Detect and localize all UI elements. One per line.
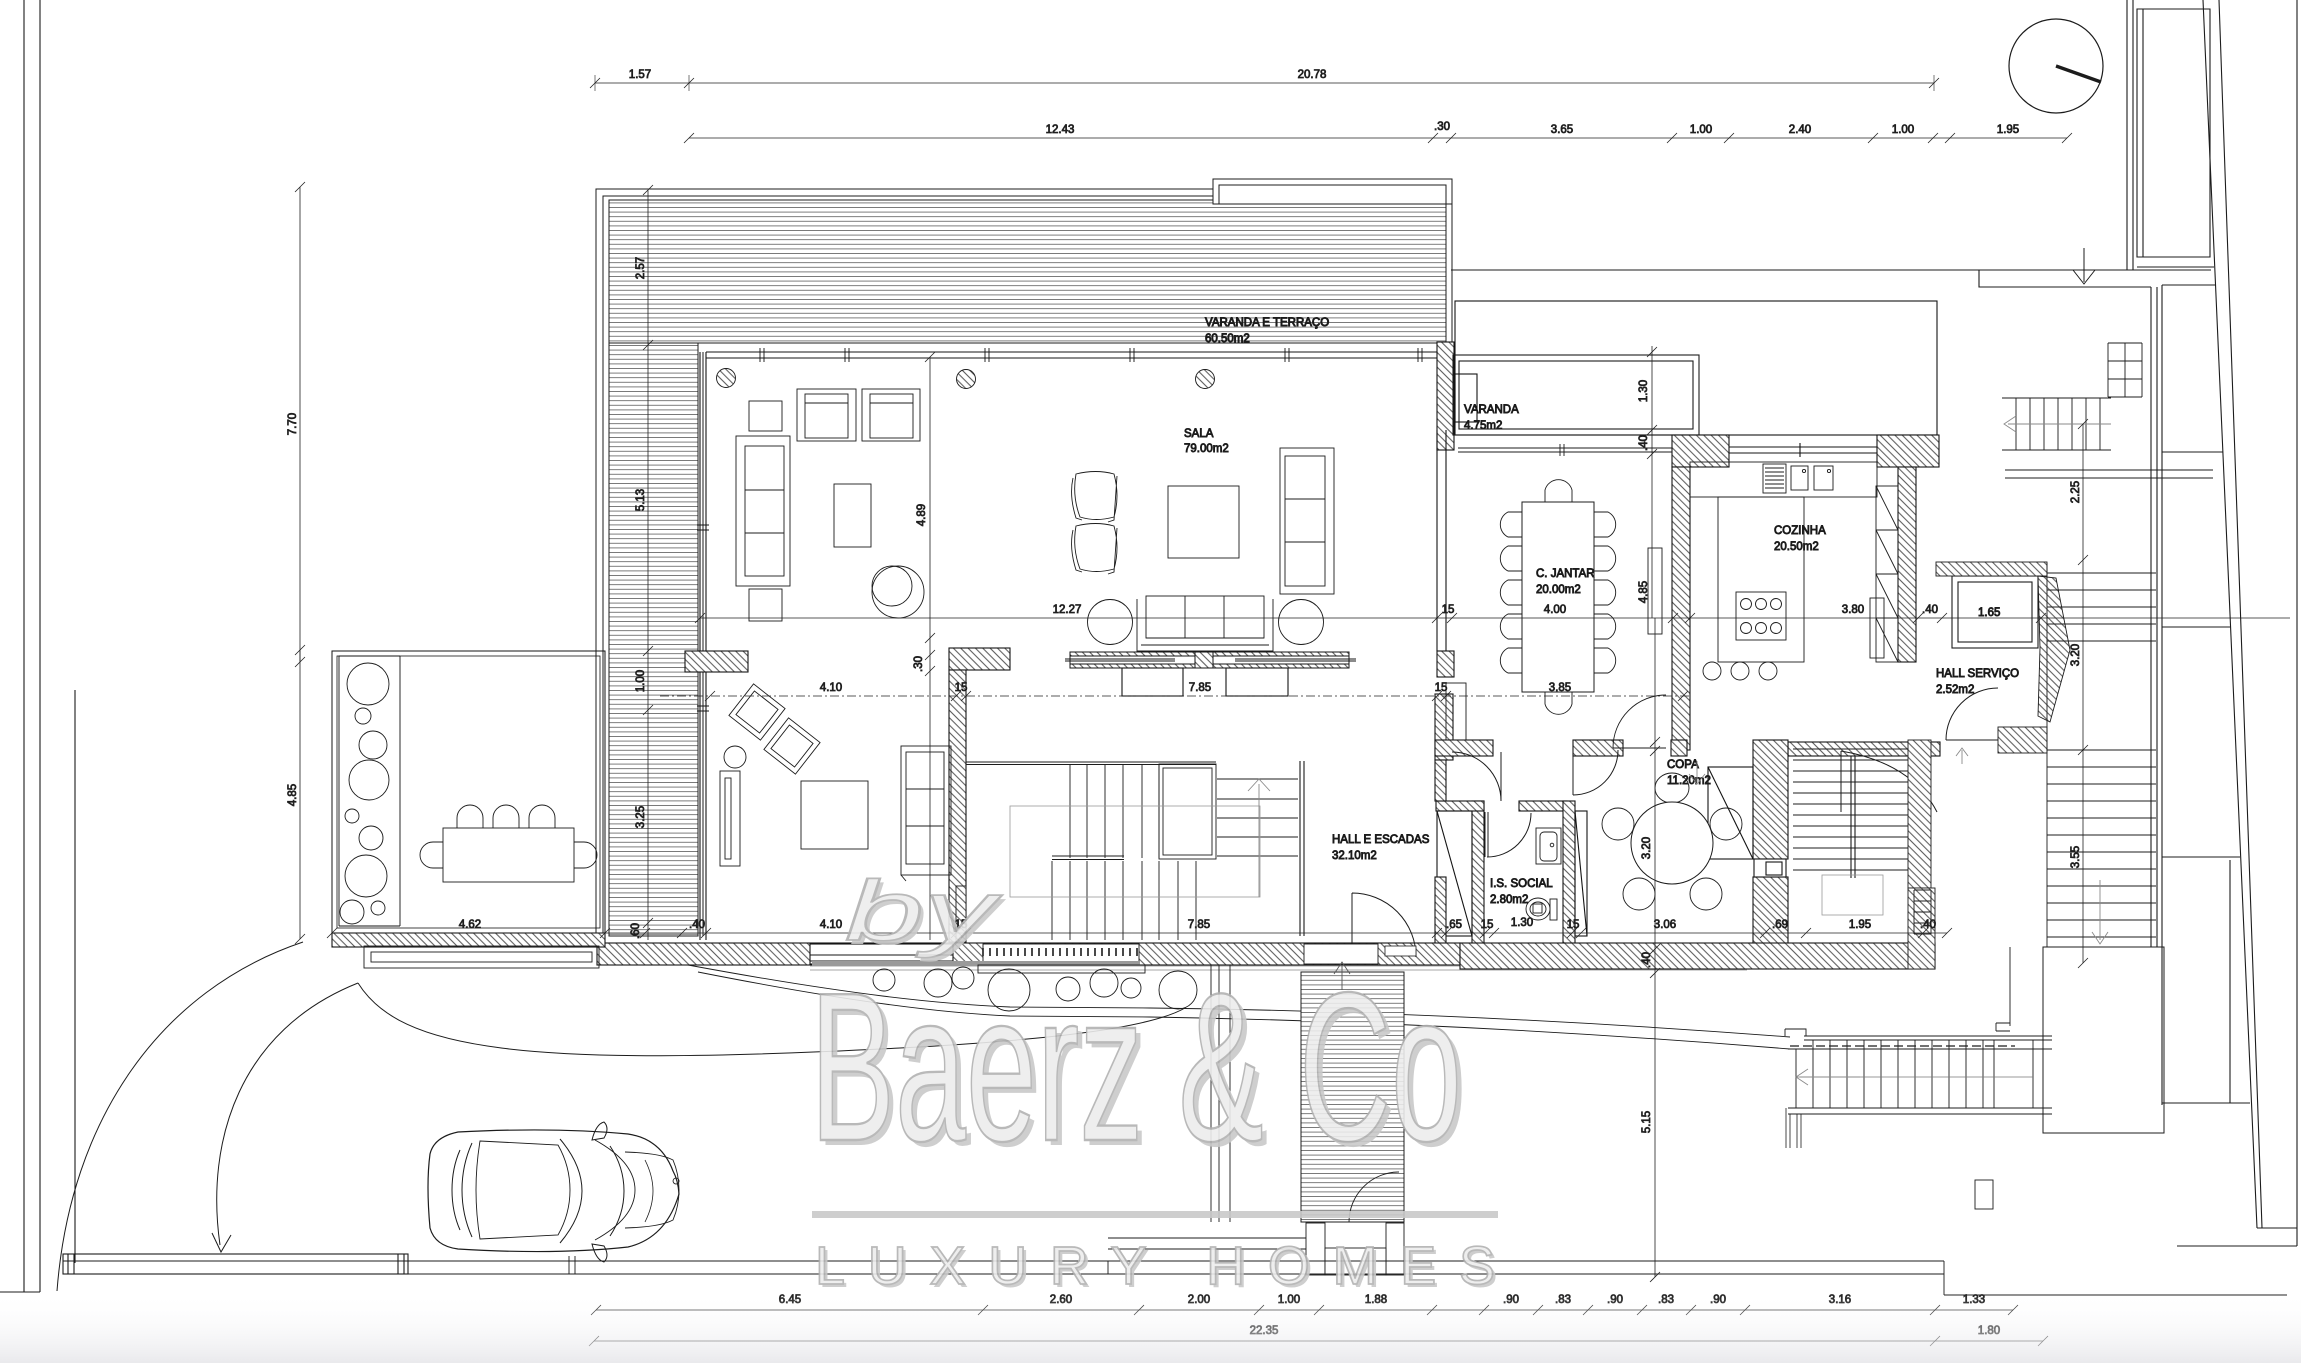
svg-text:2.52m2: 2.52m2 [1936, 684, 1974, 696]
svg-text:.40: .40 [1638, 435, 1650, 451]
svg-text:4.85: 4.85 [1638, 581, 1650, 603]
svg-text:1.65: 1.65 [1978, 607, 2000, 619]
svg-text:HALL E ESCADAS: HALL E ESCADAS [1332, 834, 1430, 846]
svg-text:VARANDA: VARANDA [1464, 404, 1519, 416]
svg-text:7.85: 7.85 [1188, 919, 1210, 931]
svg-text:2.80m2: 2.80m2 [1490, 894, 1528, 906]
svg-text:7.85: 7.85 [1189, 682, 1211, 694]
svg-text:4.62: 4.62 [459, 919, 481, 931]
svg-text:1.00: 1.00 [635, 670, 647, 692]
svg-text:HALL SERVIÇO: HALL SERVIÇO [1936, 668, 2019, 680]
svg-text:1.57: 1.57 [629, 69, 651, 81]
svg-text:.40: .40 [1922, 604, 1938, 616]
svg-text:SALA: SALA [1184, 428, 1214, 440]
svg-text:1.95: 1.95 [1997, 124, 2019, 136]
svg-text:Baerz & Co: Baerz & Co [810, 948, 1462, 1185]
svg-text:C. JANTAR: C. JANTAR [1536, 568, 1595, 580]
svg-text:.69: .69 [1772, 919, 1788, 931]
svg-text:COPA: COPA [1667, 759, 1699, 771]
svg-text:.40: .40 [1920, 919, 1936, 931]
svg-text:4.10: 4.10 [820, 682, 842, 694]
svg-text:1.00: 1.00 [1690, 124, 1712, 136]
svg-text:3.80: 3.80 [1842, 604, 1864, 616]
svg-text:4.10: 4.10 [820, 919, 842, 931]
svg-text:.60: .60 [630, 923, 642, 939]
svg-text:COZINHA: COZINHA [1774, 525, 1826, 537]
svg-text:VARANDA E TERRAÇO: VARANDA E TERRAÇO [1205, 317, 1329, 329]
svg-text:4.75m2: 4.75m2 [1464, 420, 1502, 432]
svg-text:3.20: 3.20 [1641, 837, 1653, 859]
svg-text:3.55: 3.55 [2070, 846, 2082, 868]
svg-text:5.13: 5.13 [635, 489, 647, 511]
svg-text:15: 15 [1567, 919, 1580, 931]
svg-text:7.70: 7.70 [287, 413, 299, 435]
svg-text:2.57: 2.57 [635, 257, 647, 279]
svg-text:I.S. SOCIAL: I.S. SOCIAL [1490, 878, 1553, 890]
svg-text:1.95: 1.95 [1849, 919, 1871, 931]
svg-text:.40: .40 [689, 919, 705, 931]
svg-text:1.00: 1.00 [1892, 124, 1914, 136]
svg-text:20.78: 20.78 [1298, 69, 1327, 81]
svg-text:4.00: 4.00 [1544, 604, 1566, 616]
svg-text:3.20: 3.20 [2070, 644, 2082, 666]
svg-text:3.65: 3.65 [1551, 124, 1573, 136]
svg-text:20.50m2: 20.50m2 [1774, 541, 1819, 553]
svg-text:.65: .65 [1446, 919, 1462, 931]
svg-text:12.27: 12.27 [1053, 604, 1082, 616]
svg-text:15: 15 [1442, 604, 1455, 616]
svg-text:2.25: 2.25 [2070, 481, 2082, 503]
svg-text:15: 15 [955, 682, 968, 694]
svg-text:4.89: 4.89 [916, 504, 928, 526]
svg-text:.40: .40 [1641, 952, 1653, 968]
svg-text:60.50m2: 60.50m2 [1205, 333, 1250, 345]
svg-text:3.06: 3.06 [1654, 919, 1676, 931]
svg-text:12.43: 12.43 [1046, 124, 1075, 136]
svg-text:.30: .30 [913, 656, 925, 672]
svg-text:79.00m2: 79.00m2 [1184, 443, 1229, 455]
svg-text:1.30: 1.30 [1511, 917, 1533, 929]
svg-text:20.00m2: 20.00m2 [1536, 584, 1581, 596]
svg-text:1.30: 1.30 [1638, 380, 1650, 402]
svg-text:2.40: 2.40 [1789, 124, 1811, 136]
svg-text:15: 15 [1481, 919, 1494, 931]
svg-text:15: 15 [1435, 682, 1448, 694]
svg-text:3.85: 3.85 [1549, 682, 1571, 694]
svg-text:5.15: 5.15 [1641, 1111, 1653, 1133]
svg-text:by: by [845, 864, 1003, 959]
svg-text:.30: .30 [1434, 121, 1450, 133]
svg-text:3.25: 3.25 [635, 806, 647, 828]
svg-text:32.10m2: 32.10m2 [1332, 850, 1377, 862]
svg-text:4.85: 4.85 [287, 784, 299, 806]
